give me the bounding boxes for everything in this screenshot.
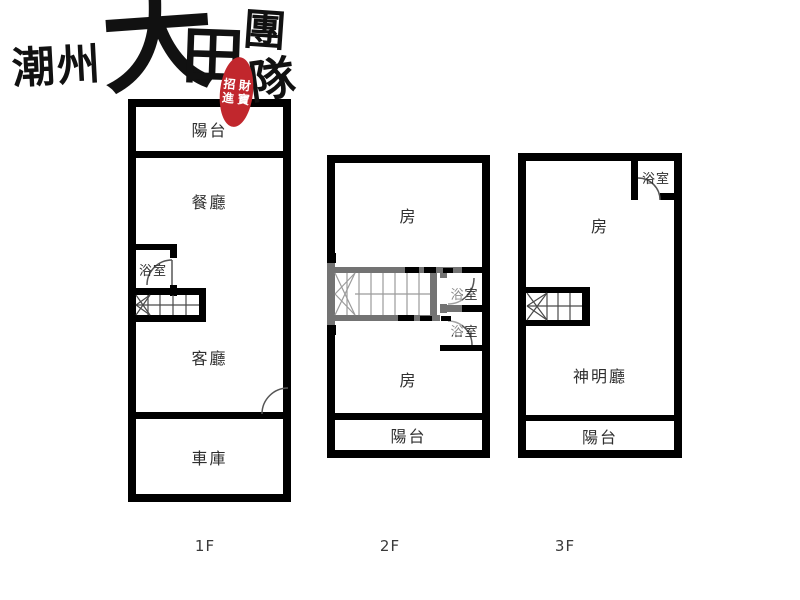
room-label-garage: 車庫 [136, 422, 283, 492]
floor-label-1f: 1F [195, 537, 215, 555]
wall [170, 244, 177, 258]
wall [136, 315, 206, 322]
seal-char: 寶 [237, 92, 250, 107]
watermark-mark [420, 316, 432, 321]
agency-logo: 潮州 大 田 團 隊 招 財 進 寶 [0, 0, 320, 140]
seal-char: 進 [221, 91, 234, 106]
room-label-balcony-2f: 陽台 [335, 420, 482, 450]
watermark-mark [398, 315, 414, 321]
watermark-overlay [322, 253, 462, 335]
watermark-mark [405, 267, 419, 273]
room-label-room-top-2f: 房 [335, 163, 482, 267]
logo-team-char-2: 隊 [246, 54, 298, 106]
logo-team-char-1: 團 [242, 9, 288, 55]
wall [136, 288, 206, 295]
wall [199, 295, 206, 322]
room-label-room-3f: 房 [526, 169, 674, 281]
logo-region-text: 潮州 [11, 44, 103, 92]
room-label-shrine: 神明廳 [526, 334, 674, 415]
room-label-room-bottom-2f: 房 [335, 351, 482, 406]
seal-char: 招 [223, 77, 236, 92]
floorplan-page: { "logo": { "region": "潮州", "brand_first… [0, 0, 800, 600]
room-label-living: 客廳 [136, 327, 283, 387]
watermark-mark [443, 268, 453, 273]
wall [136, 412, 283, 419]
watermark-mark [424, 267, 436, 273]
room-label-balcony-3f: 陽台 [526, 421, 674, 450]
room-label-bath-1f: 浴室 [136, 253, 170, 285]
wall [335, 413, 482, 420]
floorplan-3f: 浴室 房 神明廳 陽台 [518, 153, 682, 458]
wall [136, 151, 283, 158]
watermark-mark [441, 316, 451, 321]
floor-label-3f: 3F [555, 537, 575, 555]
watermark-mark [327, 253, 336, 263]
room-label-dining: 餐廳 [136, 158, 283, 244]
floor-label-2f: 2F [380, 537, 400, 555]
seal-char: 財 [238, 78, 251, 93]
wall [526, 320, 590, 326]
floorplan-1f: 陽台 餐廳 浴室 客廳 車庫 [128, 99, 291, 502]
wall [582, 293, 590, 326]
watermark-mark [327, 325, 336, 335]
wall [526, 287, 590, 293]
